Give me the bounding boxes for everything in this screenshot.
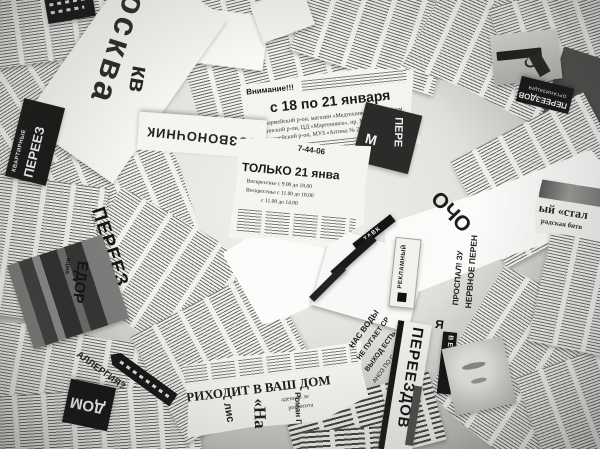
lis-text: лис [221,402,235,423]
dom-text: ДОМ [69,394,106,416]
na-quote-text: «На [251,398,269,429]
face-shadow [461,360,486,371]
phone-fragment: 7-44-06 [297,145,325,157]
newspaper-collage-photo: осква кв Внимание!!! с 18 по 21 января К… [0,0,600,449]
fine-print-texture [236,209,356,243]
dom-box: ДОМ [62,379,116,432]
white-text-texture [50,6,84,15]
schedule-line: с 11.00 до 14.00 [261,199,298,208]
logo-square [397,292,407,302]
attention-label: Внимание!!! [246,84,295,97]
pere-text: ПЕРЕ [391,117,403,147]
m-text: М [364,131,379,147]
reklamny-text: РЕКЛАМНЫЙ [397,244,408,289]
ya-text: Я [434,318,444,331]
roman-text: Роман Г [293,392,302,424]
masthead-kv-text: кв [124,64,152,95]
schedule-line: Воскресенье с 11.00 до 18.00 [246,188,314,199]
face-shadow [471,377,488,385]
